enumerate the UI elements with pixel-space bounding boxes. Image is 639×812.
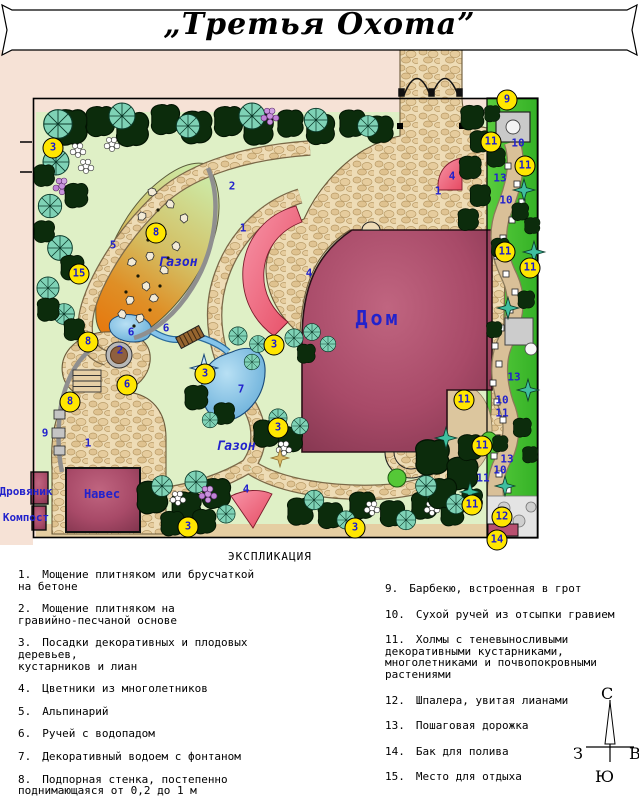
legend-item: 12.Шпалера, увитая лианами (385, 695, 637, 707)
legend-item: 15.Место для отдыха (385, 771, 637, 783)
legend-item-text: Место для отдыха (416, 770, 522, 783)
legend-item: 1.Мощение плитняком или брусчаткой на бе… (18, 569, 358, 592)
legend-item: 6.Ручей с водопадом (18, 728, 358, 740)
garden-steps (73, 370, 101, 392)
legend-item-text: Мощение плитняком на гравийно-песчаной о… (18, 602, 177, 627)
legend-item: 7.Декоративный водоем с фонтаном (18, 751, 358, 763)
canopy-naves (66, 468, 140, 532)
legend-item-text: Пошаговая дорожка (416, 719, 529, 732)
legend-item-number: 15. (385, 770, 405, 783)
legend-item-text: Цветники из многолетников (42, 682, 208, 695)
legend-item-number: 4. (18, 682, 31, 695)
legend-item: 13.Пошаговая дорожка (385, 720, 637, 732)
legend-item-number: 7. (18, 750, 31, 763)
legend-item: 8.Подпорная стенка, постепенно поднимающ… (18, 774, 358, 797)
legend-item-number: 5. (18, 705, 31, 718)
legend-item: 4.Цветники из многолетников (18, 683, 358, 695)
legend-item-text: Барбекю, встроенная в грот (409, 582, 581, 595)
legend-item: 9.Барбекю, встроенная в грот (385, 583, 637, 595)
legend-item-text: Мощение плитняком или брусчаткой на бето… (18, 568, 254, 593)
legend-item: 11.Холмы с теневыносливыми декоративными… (385, 634, 637, 680)
plan-title: „Третья Охота” (0, 0, 639, 52)
legend-item-number: 6. (18, 727, 31, 740)
garden-plan-page: С Ю З В „Третья Охота” ДомГазонГазонНаве… (0, 0, 639, 812)
legend-column-left: 1.Мощение плитняком или брусчаткой на бе… (18, 569, 358, 808)
legend-item-text: Шпалера, увитая лианами (416, 694, 568, 707)
legend-item-text: Альпинарий (42, 705, 108, 718)
legend-item-number: 9. (385, 582, 398, 595)
legend-item-text: Подпорная стенка, постепенно поднимающая… (18, 773, 228, 798)
legend-item-number: 10. (385, 608, 405, 621)
legend-item-text: Сухой ручей из отсыпки гравием (416, 608, 615, 621)
legend-item: 2.Мощение плитняком на гравийно-песчаной… (18, 603, 358, 626)
legend-item: 3.Посадки декоративных и плодовых деревь… (18, 637, 358, 672)
legend-item-text: Ручей с водопадом (42, 727, 155, 740)
legend-item: 5.Альпинарий (18, 706, 358, 718)
legend-item-text: Декоративный водоем с фонтаном (42, 750, 241, 763)
legend-item-number: 13. (385, 719, 405, 732)
legend-item-text: Бак для полива (416, 745, 509, 758)
grotto-barbecue-left (52, 410, 65, 455)
terrace-slab (505, 318, 533, 345)
legend-item: 10.Сухой ручей из отсыпки гравием (385, 609, 637, 621)
legend-item-number: 14. (385, 745, 405, 758)
legend-item: 14.Бак для полива (385, 746, 637, 758)
legend-heading: ЭКСПЛИКАЦИЯ (228, 550, 312, 563)
legend-item-text: Холмы с теневыносливыми декоративными ку… (385, 633, 597, 681)
legend-item-number: 12. (385, 694, 405, 707)
legend-item-text: Посадки декоративных и плодовых деревьев… (18, 636, 248, 672)
rest-area-table (106, 342, 132, 368)
legend-column-right: 9.Барбекю, встроенная в грот10.Сухой руч… (385, 583, 637, 797)
water-tank (488, 524, 518, 536)
